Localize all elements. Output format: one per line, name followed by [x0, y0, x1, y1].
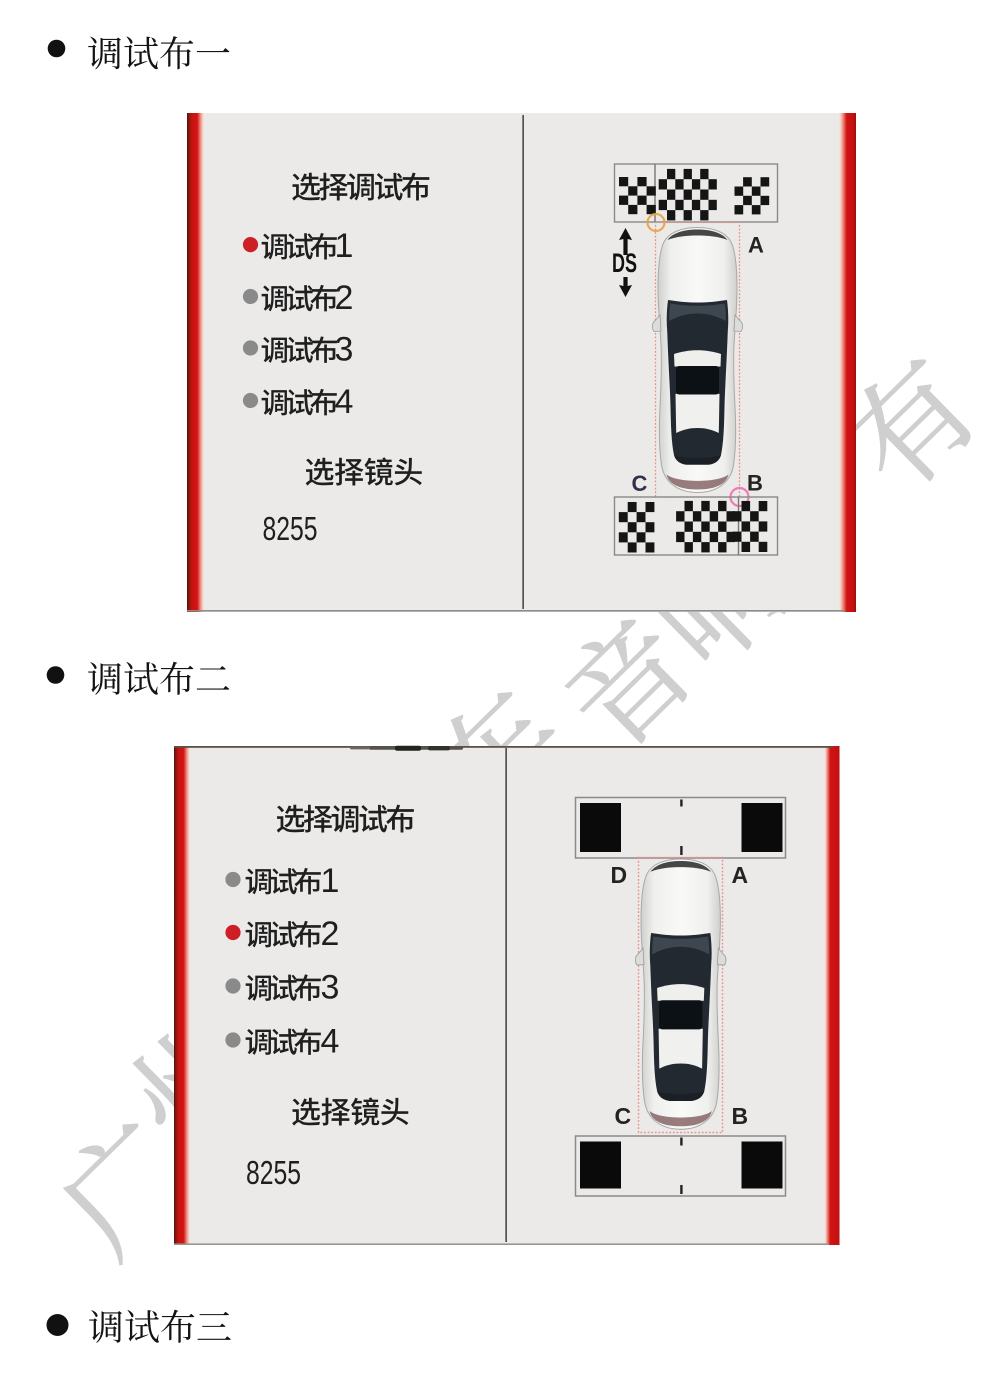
svg-text:1: 1 [335, 227, 354, 265]
svg-text:C: C [632, 471, 648, 496]
svg-text:4: 4 [321, 1023, 340, 1061]
svg-text:D: D [611, 862, 628, 888]
svg-text:8255: 8255 [246, 1154, 301, 1191]
svg-text:A: A [732, 862, 749, 888]
svg-text:4: 4 [335, 383, 354, 421]
svg-text:A: A [748, 233, 764, 258]
svg-text:B: B [732, 1103, 749, 1129]
svg-text:B: B [747, 471, 763, 496]
svg-text:C: C [615, 1103, 632, 1129]
svg-text:8255: 8255 [263, 510, 318, 547]
svg-text:3: 3 [335, 331, 354, 369]
svg-text:1: 1 [321, 862, 340, 900]
svg-text:2: 2 [335, 279, 354, 317]
svg-text:DS: DS [612, 248, 637, 278]
svg-text:2: 2 [321, 915, 340, 953]
svg-text:3: 3 [321, 969, 340, 1007]
